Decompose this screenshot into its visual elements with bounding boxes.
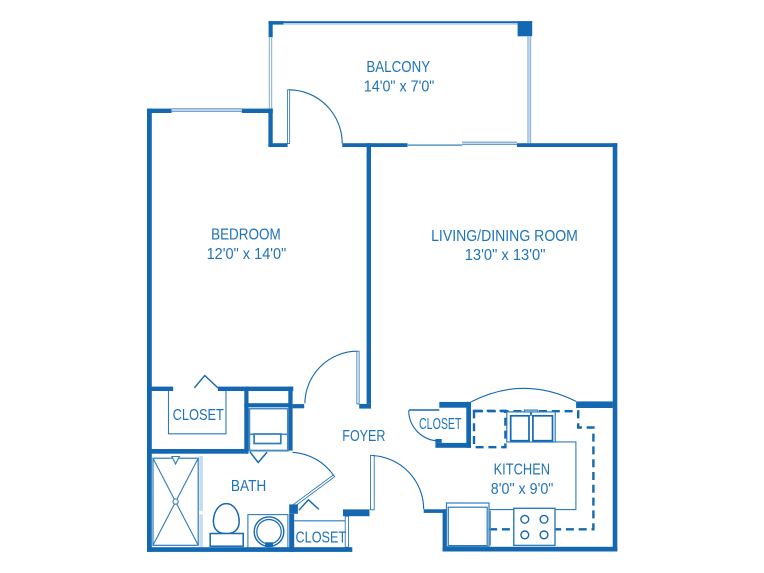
svg-text:LIVING/DINING ROOM: LIVING/DINING ROOM <box>431 228 578 245</box>
svg-text:13'0" x 13'0": 13'0" x 13'0" <box>465 247 546 264</box>
svg-text:BATH: BATH <box>231 478 266 495</box>
svg-text:CLOSET: CLOSET <box>296 529 347 546</box>
svg-text:KITCHEN: KITCHEN <box>494 462 550 479</box>
svg-text:CLOSET: CLOSET <box>173 407 225 424</box>
svg-text:14'0" x 7'0": 14'0" x 7'0" <box>364 79 435 96</box>
svg-text:12'0" x 14'0": 12'0" x 14'0" <box>207 246 287 263</box>
svg-text:8'0" x 9'0": 8'0" x 9'0" <box>491 481 554 498</box>
svg-text:CLOSET: CLOSET <box>419 416 462 433</box>
svg-text:BEDROOM: BEDROOM <box>211 227 281 244</box>
svg-text:BALCONY: BALCONY <box>366 59 430 76</box>
svg-text:FOYER: FOYER <box>342 428 385 445</box>
